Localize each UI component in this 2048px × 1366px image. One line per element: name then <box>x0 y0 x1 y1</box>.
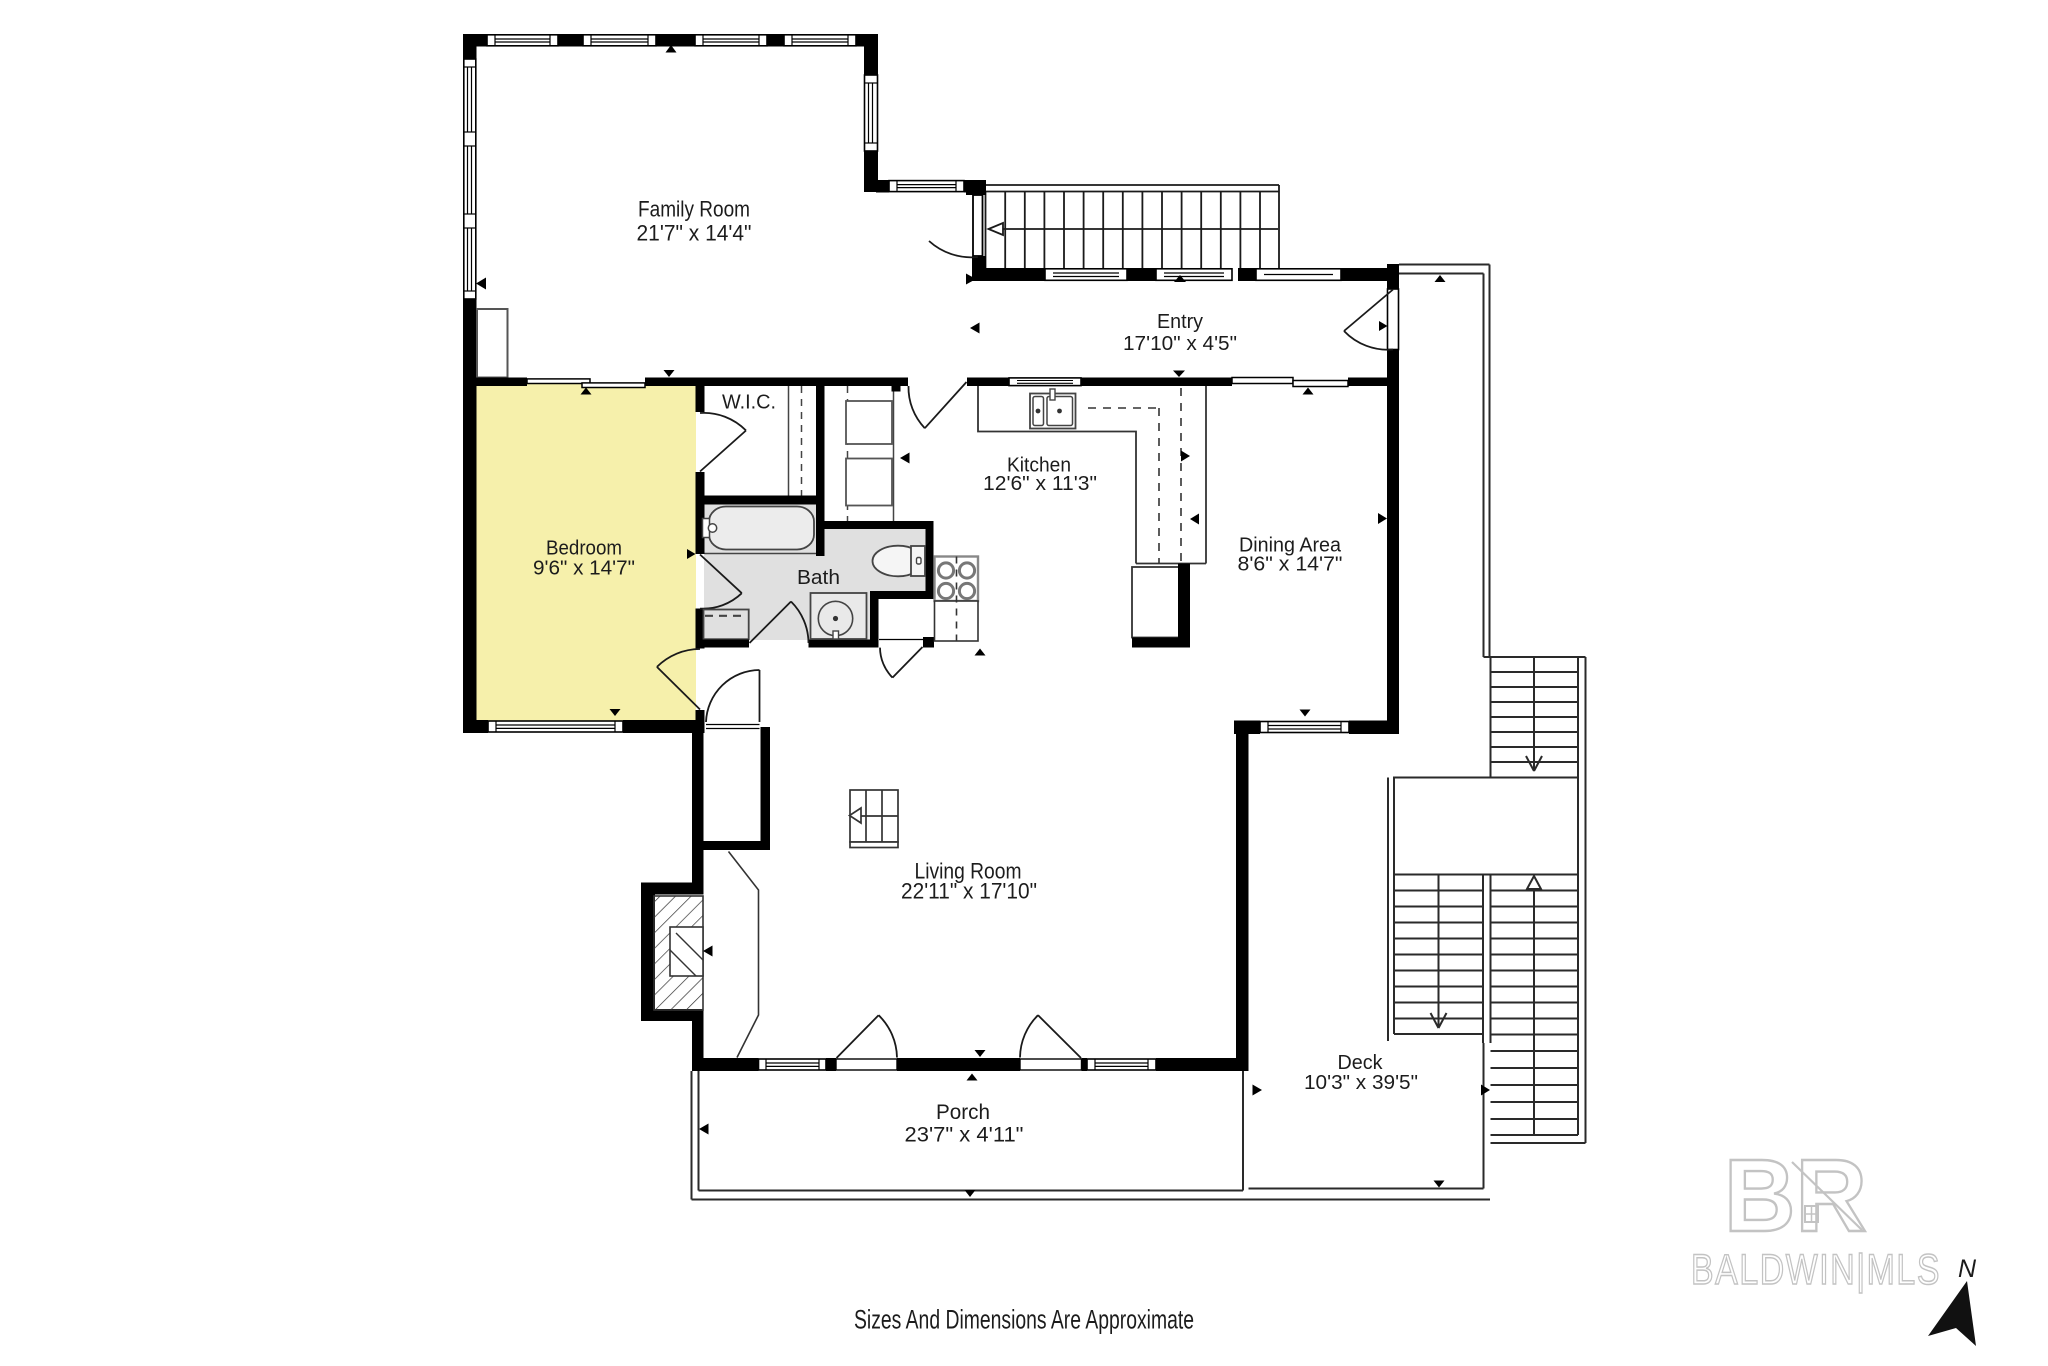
svg-text:N: N <box>1958 1255 1977 1283</box>
svg-text:8'6" x 14'7": 8'6" x 14'7" <box>1238 554 1343 576</box>
svg-text:Bath: Bath <box>797 567 840 589</box>
svg-text:Bedroom: Bedroom <box>546 538 622 560</box>
svg-text:Entry: Entry <box>1157 311 1203 333</box>
svg-text:23'7" x 4'11": 23'7" x 4'11" <box>905 1124 1024 1147</box>
svg-text:21'7" x 14'4": 21'7" x 14'4" <box>637 221 752 246</box>
svg-text:10'3" x 39'5": 10'3" x 39'5" <box>1304 1072 1418 1094</box>
svg-text:22'11" x 17'10": 22'11" x 17'10" <box>901 879 1037 904</box>
svg-text:BALDWIN|MLS: BALDWIN|MLS <box>1691 1246 1941 1294</box>
svg-text:12'6" x 11'3": 12'6" x 11'3" <box>983 473 1097 495</box>
svg-text:BR: BR <box>1724 1138 1867 1253</box>
svg-text:W.I.C.: W.I.C. <box>722 392 776 414</box>
svg-text:Sizes And Dimensions Are Appro: Sizes And Dimensions Are Approximate <box>854 1305 1194 1335</box>
svg-text:17'10" x 4'5": 17'10" x 4'5" <box>1123 333 1237 355</box>
svg-text:Deck: Deck <box>1338 1052 1384 1074</box>
svg-text:9'6" x 14'7": 9'6" x 14'7" <box>533 558 635 580</box>
svg-text:Porch: Porch <box>936 1101 990 1124</box>
svg-text:Family Room: Family Room <box>638 197 750 222</box>
